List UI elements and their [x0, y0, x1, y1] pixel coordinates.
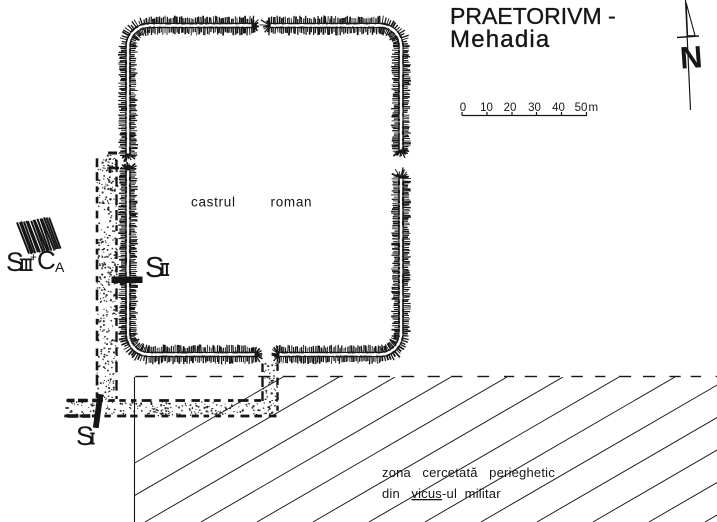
svg-text:40: 40: [552, 102, 565, 114]
svg-text:10: 10: [480, 102, 493, 114]
svg-text:S: S: [145, 252, 164, 284]
svg-text:S: S: [76, 421, 94, 451]
svg-text:N: N: [679, 39, 704, 75]
svg-text:Mehadia: Mehadia: [450, 26, 550, 53]
svg-text:50: 50: [575, 102, 588, 114]
svg-text:+: +: [30, 250, 37, 264]
svg-text:roman: roman: [271, 195, 313, 210]
svg-text:A: A: [55, 259, 65, 275]
svg-text:30: 30: [528, 102, 541, 114]
svg-text:m: m: [589, 102, 599, 114]
svg-text:zona cercetată perieghetic: zona cercetată perieghetic: [382, 465, 555, 480]
svg-text:castrul: castrul: [191, 195, 236, 210]
svg-text:0: 0: [460, 102, 466, 114]
svg-text:C: C: [37, 245, 56, 275]
svg-text:20: 20: [504, 102, 517, 114]
svg-text:din vicus-ul militar: din vicus-ul militar: [382, 486, 501, 501]
